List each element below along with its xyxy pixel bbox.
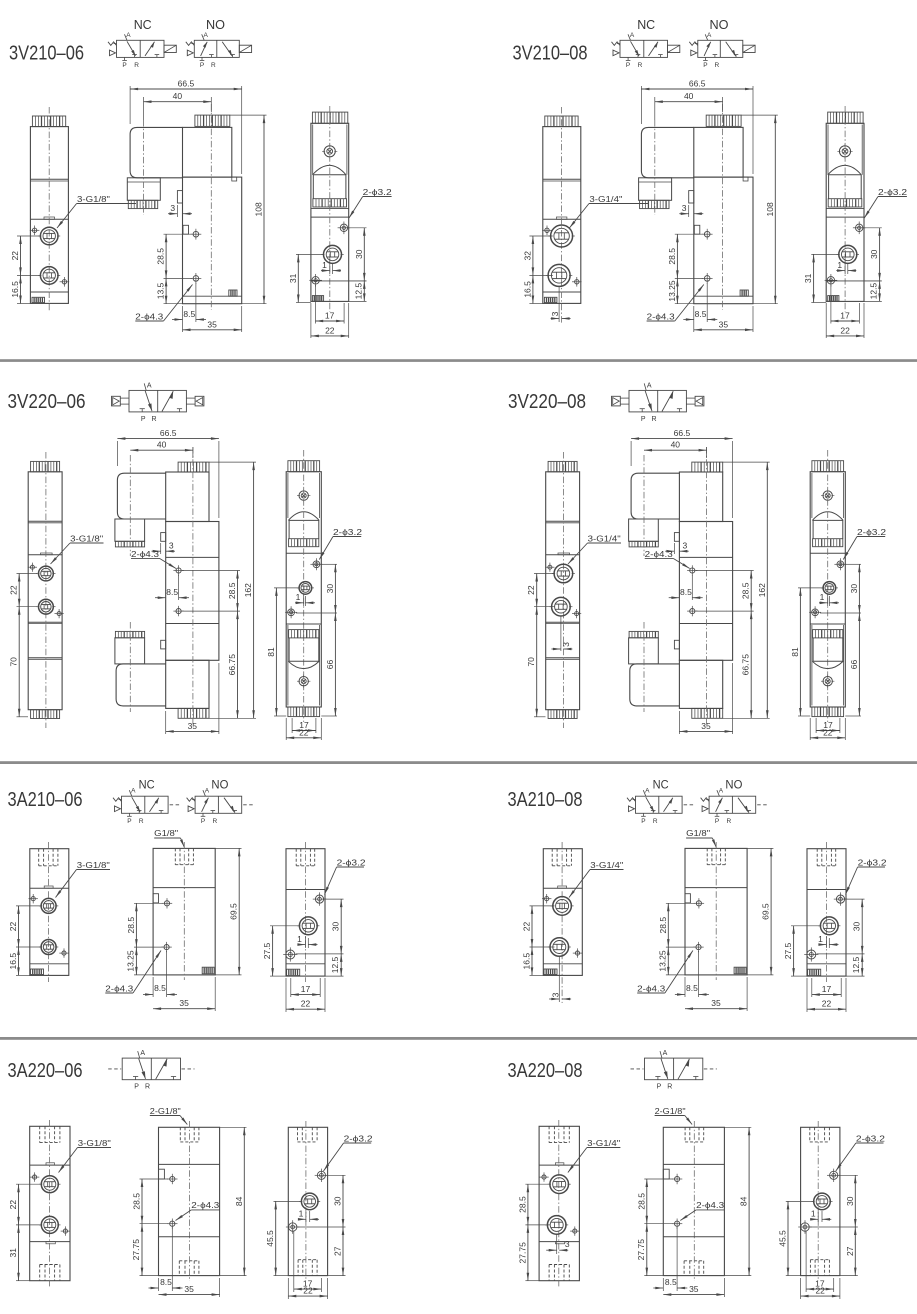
svg-text:R: R	[211, 62, 216, 69]
svg-text:P: P	[200, 62, 204, 69]
svg-text:A: A	[663, 1050, 668, 1057]
svg-text:8.5: 8.5	[680, 587, 692, 597]
svg-text:27.75: 27.75	[517, 1242, 527, 1264]
svg-text:2-ϕ4.3: 2-ϕ4.3	[135, 312, 163, 322]
svg-text:2-ϕ3.2: 2-ϕ3.2	[333, 527, 362, 537]
svg-text:22: 22	[299, 727, 309, 737]
svg-text:40: 40	[671, 440, 681, 450]
svg-text:16.5: 16.5	[8, 953, 18, 970]
svg-text:27: 27	[333, 1246, 343, 1256]
svg-text:3A210–06: 3A210–06	[8, 788, 83, 811]
svg-text:40: 40	[684, 91, 694, 101]
svg-text:8.5: 8.5	[166, 587, 178, 597]
svg-text:35: 35	[719, 319, 729, 329]
svg-text:3: 3	[682, 203, 687, 213]
svg-text:22: 22	[823, 727, 833, 737]
svg-text:R: R	[151, 416, 156, 423]
svg-text:1: 1	[811, 1209, 816, 1219]
svg-text:A: A	[647, 382, 652, 389]
svg-text:22: 22	[840, 325, 850, 335]
svg-text:31: 31	[288, 273, 298, 283]
svg-text:22: 22	[301, 999, 311, 1009]
svg-text:13.25: 13.25	[667, 280, 677, 302]
svg-text:NO: NO	[211, 780, 228, 792]
svg-text:22: 22	[822, 999, 832, 1009]
svg-text:A: A	[126, 32, 131, 39]
svg-text:3A210–08: 3A210–08	[508, 788, 583, 811]
svg-text:81: 81	[790, 647, 800, 657]
svg-text:22: 22	[325, 325, 335, 335]
svg-text:1: 1	[837, 260, 842, 270]
svg-text:2-ϕ4.3: 2-ϕ4.3	[647, 312, 675, 322]
svg-text:NO: NO	[206, 18, 225, 32]
svg-text:108: 108	[254, 202, 264, 216]
svg-text:A: A	[131, 788, 136, 795]
svg-text:A: A	[147, 382, 152, 389]
svg-text:P: P	[141, 416, 146, 423]
svg-text:3-G1/4": 3-G1/4"	[588, 534, 621, 544]
svg-text:NC: NC	[637, 18, 655, 32]
svg-text:30: 30	[852, 922, 862, 932]
svg-text:22: 22	[10, 251, 20, 261]
svg-text:69.5: 69.5	[229, 903, 239, 920]
svg-text:8.5: 8.5	[160, 1277, 172, 1287]
svg-text:2-ϕ4.3: 2-ϕ4.3	[696, 1200, 724, 1210]
svg-text:22: 22	[8, 1200, 18, 1210]
svg-text:G1/8": G1/8"	[686, 828, 710, 838]
svg-text:P: P	[641, 818, 645, 825]
svg-text:NC: NC	[134, 18, 152, 32]
svg-text:3V220–06: 3V220–06	[8, 390, 86, 413]
svg-text:12.5: 12.5	[851, 956, 861, 973]
svg-text:2-ϕ3.2: 2-ϕ3.2	[878, 187, 907, 197]
svg-text:13.25: 13.25	[657, 950, 667, 972]
svg-text:3: 3	[170, 203, 175, 213]
svg-text:22: 22	[526, 585, 536, 595]
svg-text:3-G1/8": 3-G1/8"	[77, 194, 110, 204]
svg-text:162: 162	[243, 583, 253, 597]
svg-text:P: P	[703, 62, 707, 69]
svg-text:P: P	[657, 1084, 662, 1091]
svg-text:13.25: 13.25	[125, 950, 135, 972]
svg-text:30: 30	[333, 1196, 343, 1206]
svg-text:NC: NC	[139, 780, 155, 792]
svg-text:3-G1/4": 3-G1/4"	[587, 1138, 620, 1148]
svg-text:A: A	[205, 788, 210, 795]
svg-text:NC: NC	[653, 780, 669, 792]
svg-text:R: R	[134, 62, 139, 69]
svg-text:66.5: 66.5	[178, 79, 195, 89]
svg-text:12.5: 12.5	[353, 283, 363, 300]
svg-text:27: 27	[845, 1246, 855, 1256]
svg-text:35: 35	[711, 998, 721, 1008]
svg-text:27.75: 27.75	[131, 1239, 141, 1261]
svg-text:162: 162	[757, 583, 767, 597]
svg-text:28.5: 28.5	[667, 248, 677, 265]
svg-text:2-G1/8": 2-G1/8"	[150, 1106, 181, 1116]
svg-text:1: 1	[299, 1209, 304, 1219]
svg-text:R: R	[651, 416, 656, 423]
svg-text:13.5: 13.5	[156, 282, 166, 299]
svg-text:1: 1	[820, 592, 825, 602]
svg-text:22: 22	[303, 1286, 313, 1296]
svg-text:3: 3	[169, 541, 174, 551]
svg-text:8.5: 8.5	[665, 1277, 677, 1287]
svg-text:1: 1	[818, 934, 823, 944]
svg-text:1: 1	[297, 934, 302, 944]
svg-text:R: R	[726, 818, 731, 825]
svg-text:40: 40	[157, 440, 167, 450]
svg-text:35: 35	[689, 1284, 699, 1294]
svg-text:17: 17	[301, 984, 311, 994]
svg-text:NO: NO	[725, 780, 742, 792]
svg-text:2-ϕ3.2: 2-ϕ3.2	[337, 858, 366, 868]
svg-text:31: 31	[803, 273, 813, 283]
svg-text:35: 35	[207, 319, 217, 329]
svg-text:2-ϕ4.3: 2-ϕ4.3	[105, 984, 133, 994]
svg-text:30: 30	[869, 249, 879, 259]
svg-text:3: 3	[550, 311, 560, 316]
svg-text:66.5: 66.5	[674, 428, 691, 438]
svg-text:R: R	[715, 62, 720, 69]
svg-text:40: 40	[173, 91, 183, 101]
svg-text:12.5: 12.5	[869, 283, 879, 300]
svg-text:2-ϕ3.2: 2-ϕ3.2	[344, 1134, 373, 1144]
svg-text:28.5: 28.5	[156, 248, 166, 265]
svg-text:P: P	[122, 62, 126, 69]
svg-text:3: 3	[565, 1239, 570, 1249]
svg-text:17: 17	[325, 311, 335, 321]
svg-text:30: 30	[331, 922, 341, 932]
svg-text:R: R	[212, 818, 217, 825]
svg-text:P: P	[201, 818, 205, 825]
svg-text:A: A	[719, 788, 724, 795]
svg-text:16.5: 16.5	[10, 281, 20, 298]
svg-text:3: 3	[561, 642, 571, 647]
svg-text:12.5: 12.5	[330, 956, 340, 973]
svg-text:2-ϕ4.3: 2-ϕ4.3	[191, 1200, 219, 1210]
svg-text:17: 17	[840, 311, 850, 321]
svg-text:2-G1/8": 2-G1/8"	[655, 1106, 686, 1116]
svg-text:35: 35	[179, 998, 189, 1008]
svg-text:28.5: 28.5	[132, 1193, 142, 1210]
svg-text:66.5: 66.5	[689, 79, 706, 89]
svg-text:P: P	[641, 416, 646, 423]
svg-text:66: 66	[849, 660, 859, 670]
svg-text:A: A	[204, 32, 209, 39]
svg-text:35: 35	[184, 1284, 194, 1294]
svg-text:R: R	[145, 1084, 150, 1091]
svg-text:45.5: 45.5	[265, 1230, 275, 1247]
svg-text:70: 70	[9, 657, 19, 667]
svg-text:G1/8": G1/8"	[154, 828, 178, 838]
svg-text:30: 30	[354, 249, 364, 259]
svg-text:70: 70	[526, 657, 536, 667]
svg-text:28.5: 28.5	[517, 1196, 527, 1213]
svg-text:84: 84	[234, 1196, 244, 1206]
svg-text:1: 1	[296, 592, 301, 602]
svg-text:3V220–08: 3V220–08	[508, 390, 586, 413]
svg-text:3V210–06: 3V210–06	[9, 42, 84, 65]
svg-text:27.5: 27.5	[262, 942, 272, 959]
svg-text:A: A	[630, 32, 635, 39]
svg-text:R: R	[667, 1084, 672, 1091]
svg-text:NO: NO	[710, 18, 729, 32]
svg-text:45.5: 45.5	[778, 1230, 788, 1247]
svg-text:22: 22	[815, 1286, 825, 1296]
svg-text:2-ϕ3.2: 2-ϕ3.2	[857, 527, 886, 537]
svg-text:66: 66	[325, 660, 335, 670]
svg-text:3A220–08: 3A220–08	[508, 1059, 583, 1082]
svg-text:28.5: 28.5	[658, 917, 668, 934]
svg-text:16.5: 16.5	[522, 281, 532, 298]
svg-text:8.5: 8.5	[686, 983, 698, 993]
svg-text:30: 30	[845, 1196, 855, 1206]
svg-text:17: 17	[822, 984, 832, 994]
svg-text:R: R	[638, 62, 643, 69]
svg-text:3-G1/4": 3-G1/4"	[589, 194, 622, 204]
svg-text:8.5: 8.5	[183, 309, 195, 319]
svg-text:3A220–06: 3A220–06	[8, 1059, 83, 1082]
svg-text:35: 35	[701, 721, 711, 731]
svg-text:2-ϕ4.3: 2-ϕ4.3	[645, 549, 673, 559]
svg-text:66.75: 66.75	[741, 654, 751, 676]
svg-text:A: A	[140, 1050, 145, 1057]
svg-text:69.5: 69.5	[761, 903, 771, 920]
svg-text:22: 22	[522, 922, 532, 932]
svg-text:31: 31	[8, 1248, 18, 1258]
svg-text:22: 22	[8, 922, 18, 932]
svg-text:3: 3	[551, 992, 561, 997]
svg-text:2-ϕ3.2: 2-ϕ3.2	[858, 858, 887, 868]
svg-text:16.5: 16.5	[522, 953, 532, 970]
svg-text:84: 84	[739, 1196, 749, 1206]
svg-text:32: 32	[522, 251, 532, 261]
svg-text:2-ϕ3.2: 2-ϕ3.2	[363, 187, 392, 197]
svg-text:28.5: 28.5	[741, 582, 751, 599]
svg-text:3-G1/8": 3-G1/8"	[77, 860, 110, 870]
svg-text:66.5: 66.5	[160, 428, 177, 438]
svg-text:3V210–08: 3V210–08	[513, 42, 588, 65]
svg-text:28.5: 28.5	[227, 582, 237, 599]
svg-text:1: 1	[322, 260, 327, 270]
svg-text:2-ϕ4.3: 2-ϕ4.3	[637, 984, 665, 994]
svg-text:A: A	[707, 32, 712, 39]
svg-text:3-G1/8": 3-G1/8"	[78, 1138, 111, 1148]
svg-text:P: P	[127, 818, 131, 825]
svg-text:28.5: 28.5	[636, 1193, 646, 1210]
svg-text:3-G1/8": 3-G1/8"	[70, 534, 103, 544]
svg-text:2-ϕ4.3: 2-ϕ4.3	[131, 549, 159, 559]
svg-text:27.75: 27.75	[636, 1239, 646, 1261]
svg-text:108: 108	[765, 202, 775, 216]
svg-text:A: A	[645, 788, 650, 795]
svg-text:P: P	[626, 62, 630, 69]
svg-text:30: 30	[325, 584, 335, 594]
svg-text:30: 30	[849, 584, 859, 594]
svg-text:81: 81	[266, 647, 276, 657]
svg-text:P: P	[715, 818, 719, 825]
svg-text:28.5: 28.5	[126, 917, 136, 934]
svg-text:27.5: 27.5	[783, 942, 793, 959]
svg-text:2-ϕ3.2: 2-ϕ3.2	[856, 1134, 885, 1144]
svg-text:35: 35	[188, 721, 198, 731]
svg-text:22: 22	[9, 585, 19, 595]
svg-text:8.5: 8.5	[695, 309, 707, 319]
svg-text:P: P	[134, 1084, 139, 1091]
svg-text:R: R	[653, 818, 658, 825]
svg-text:8.5: 8.5	[154, 983, 166, 993]
svg-text:66.75: 66.75	[227, 654, 237, 676]
svg-text:3: 3	[683, 541, 688, 551]
svg-text:3-G1/4": 3-G1/4"	[590, 860, 623, 870]
svg-text:R: R	[139, 818, 144, 825]
